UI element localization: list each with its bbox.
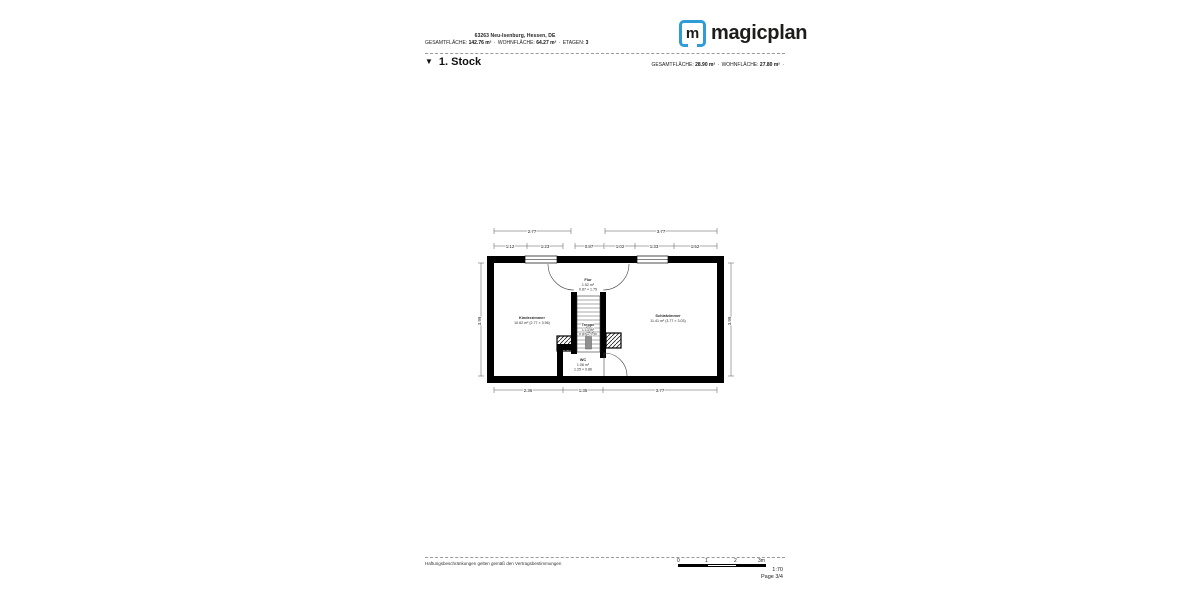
- stat-value: 3: [586, 40, 589, 46]
- stat-label: WOHNFLÄCHE:: [498, 40, 535, 46]
- window-icon: [637, 256, 668, 263]
- stat-value: 28.90 m²: [695, 62, 715, 68]
- separator: ·: [559, 40, 561, 46]
- header-divider: [425, 53, 785, 54]
- svg-text:0.87 × 1.30: 0.87 × 1.30: [579, 333, 597, 337]
- svg-text:Schlafzimmer: Schlafzimmer: [655, 313, 681, 318]
- dim-label: 1.33: [650, 244, 659, 249]
- svg-text:1.25 × 0.86: 1.25 × 0.86: [574, 368, 592, 372]
- magicplan-logo-text: magicplan: [711, 22, 807, 45]
- separator: ·: [494, 40, 496, 46]
- dim-label: 3.77: [656, 388, 665, 393]
- dim-label: 2.77: [528, 229, 537, 234]
- svg-text:11.41 m² (3.77 × 3.03): 11.41 m² (3.77 × 3.03): [650, 319, 685, 323]
- room-label-treppe: Treppe 1.13 m² 0.87 × 1.30: [579, 322, 597, 337]
- stat-label: WOHNFLÄCHE:: [722, 62, 759, 68]
- hatched-block: [557, 336, 572, 351]
- dim-label: 3.77: [657, 229, 666, 234]
- stat-value: 27.80 m²: [760, 62, 780, 68]
- svg-text:0.87 × 1.75: 0.87 × 1.75: [579, 288, 597, 292]
- window-icon: [525, 256, 557, 263]
- door-arc: [548, 264, 574, 290]
- dim-label: 3.99: [727, 316, 732, 325]
- svg-text:1.08 m²: 1.08 m²: [577, 363, 590, 367]
- dim-label: 1.12: [506, 244, 515, 249]
- dim-label: 0.87: [585, 244, 594, 249]
- floor-stats: GESAMTFLÄCHE: 28.90 m² · WOHNFLÄCHE: 27.…: [425, 62, 785, 68]
- hatched-block: [606, 333, 621, 348]
- stat-value: 142.76 m²: [469, 40, 492, 46]
- dim-label: 1.35: [579, 388, 588, 393]
- separator: ·: [718, 62, 720, 68]
- door-arc: [603, 264, 629, 290]
- scale-ratio: 1:70: [425, 567, 783, 573]
- svg-text:1.13 m²: 1.13 m²: [582, 328, 595, 332]
- svg-text:Kinderzimmer: Kinderzimmer: [519, 315, 545, 320]
- door-arc: [604, 353, 627, 376]
- svg-text:Flur: Flur: [584, 277, 592, 282]
- separator: ·: [782, 62, 784, 68]
- page-number: Page 3/4: [425, 574, 783, 580]
- room-label-kinderzimmer: Kinderzimmer 10.62 m² (2.77 × 3.96): [514, 315, 550, 325]
- dim-label: 1.52: [691, 244, 700, 249]
- svg-text:1.52 m²: 1.52 m²: [582, 283, 595, 287]
- property-address: 63263 Neu-Isenburg, Hessen, DE: [425, 33, 605, 39]
- dim-label: 2.36: [524, 388, 533, 393]
- magicplan-logo: m magicplan: [679, 16, 807, 50]
- room-label-schlafzimmer: Schlafzimmer 11.41 m² (3.77 × 3.03): [650, 313, 685, 323]
- room-label-wc: WC 1.08 m² 1.25 × 0.86: [574, 357, 592, 372]
- stat-label: ETAGEN:: [563, 40, 585, 46]
- disclaimer-text: Haftungsbeschränkungen gelten gemäß den …: [425, 561, 561, 566]
- room-label-flur: Flur 1.52 m² 0.87 × 1.75: [579, 277, 597, 292]
- svg-text:Treppe: Treppe: [582, 322, 596, 327]
- svg-text:WC: WC: [580, 357, 587, 362]
- floorplan-drawing: 2.77 3.77 1.12 1.23 0.87 1.02 1.33 1.52 …: [468, 222, 746, 402]
- stat-label: GESAMTFLÄCHE:: [651, 62, 693, 68]
- dim-label: 1.23: [541, 244, 550, 249]
- magicplan-m-icon: m: [679, 20, 706, 47]
- dim-label: 1.02: [616, 244, 625, 249]
- dim-label: 3.99: [477, 316, 482, 325]
- stat-value: 64.27 m²: [536, 40, 556, 46]
- svg-text:10.62 m² (2.77 × 3.96): 10.62 m² (2.77 × 3.96): [514, 321, 550, 325]
- stat-label: GESAMTFLÄCHE:: [425, 40, 467, 46]
- floorplan-page: 63263 Neu-Isenburg, Hessen, DE GESAMTFLÄ…: [0, 0, 1200, 600]
